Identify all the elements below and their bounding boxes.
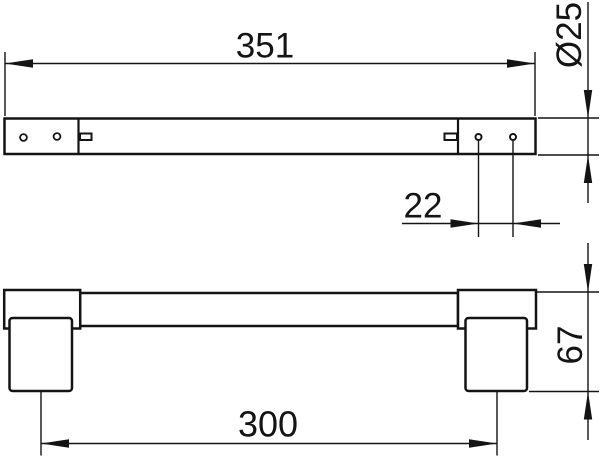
dim-label-mounting-centers: 300 bbox=[238, 404, 298, 445]
arrowhead-left-icon bbox=[513, 219, 541, 227]
dim-hole-spacing: 22 bbox=[402, 141, 560, 237]
arrowhead-up-icon bbox=[584, 155, 592, 183]
dim-bar-diameter: Ø25 bbox=[538, 2, 599, 203]
left-mount-post bbox=[10, 318, 73, 391]
arrowhead-left-icon bbox=[5, 59, 33, 68]
arrowhead-right-icon bbox=[507, 59, 535, 68]
dim-label-bar-diameter: Ø25 bbox=[550, 2, 589, 68]
technical-drawing-canvas: 351 Ø25 22 bbox=[0, 0, 600, 458]
arrowhead-down-icon bbox=[584, 264, 592, 292]
dim-overall-length: 351 bbox=[5, 27, 535, 117]
right-mount-post bbox=[466, 318, 528, 391]
arrowhead-right-icon bbox=[451, 219, 479, 227]
arrowhead-down-icon bbox=[584, 90, 592, 118]
dim-label-overall-height: 67 bbox=[551, 326, 590, 365]
arrowhead-right-icon bbox=[469, 439, 497, 447]
technical-drawing: 351 Ø25 22 bbox=[0, 0, 600, 458]
right-latch-tab bbox=[445, 134, 458, 141]
top-view bbox=[5, 118, 536, 155]
dim-overall-height: 67 bbox=[529, 243, 599, 440]
dim-mounting-centers: 300 bbox=[41, 392, 497, 456]
front-view bbox=[4, 290, 536, 391]
dim-label-hole-spacing: 22 bbox=[404, 187, 443, 226]
rail-outline bbox=[80, 293, 458, 326]
arrowhead-up-icon bbox=[584, 392, 592, 420]
dim-label-overall-length: 351 bbox=[236, 27, 294, 66]
left-latch-tab bbox=[80, 134, 92, 141]
arrowhead-left-icon bbox=[41, 439, 69, 447]
